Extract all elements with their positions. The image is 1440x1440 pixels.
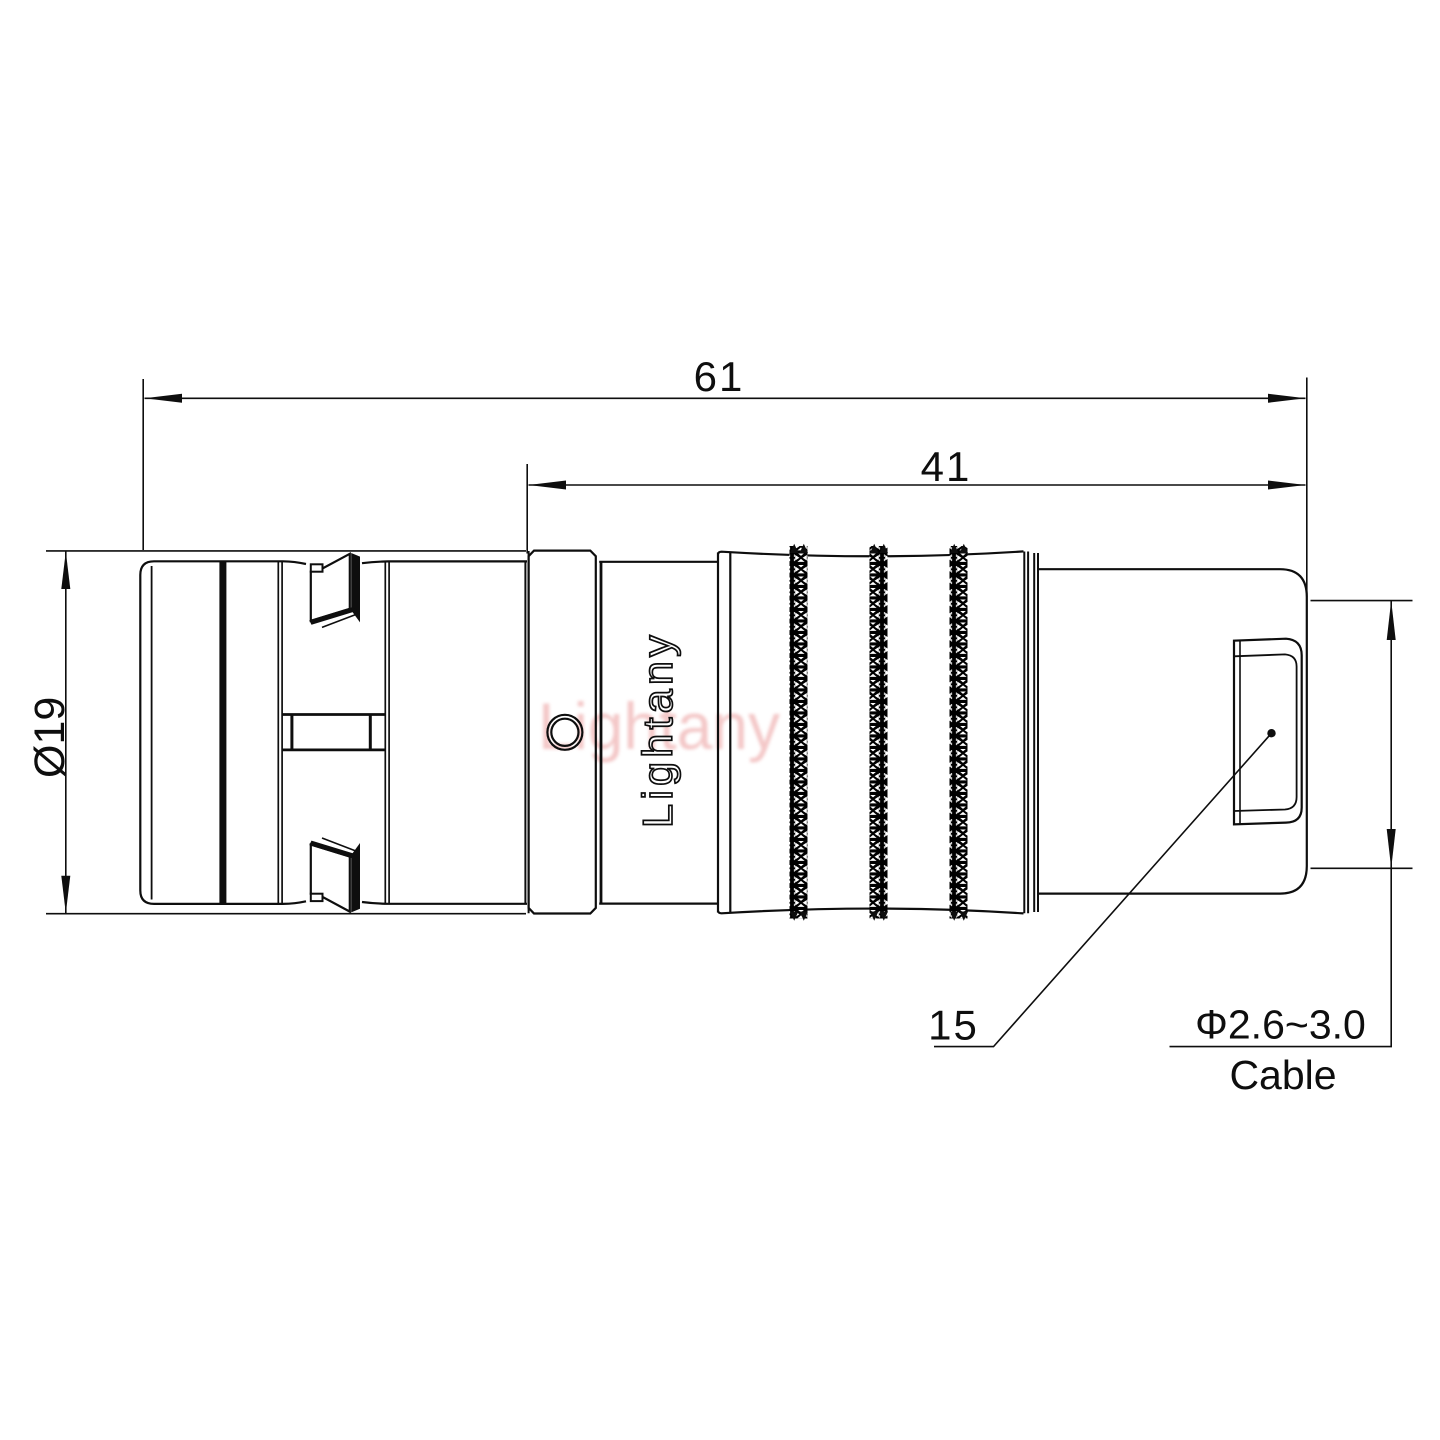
svg-text:Ø19: Ø19 (26, 697, 74, 778)
svg-text:Φ2.6~3.0: Φ2.6~3.0 (1195, 1002, 1366, 1048)
svg-text:15: 15 (928, 1002, 979, 1049)
svg-text:61: 61 (694, 353, 745, 400)
svg-text:Lightany: Lightany (634, 631, 681, 828)
svg-text:Cable: Cable (1229, 1052, 1336, 1098)
svg-text:41: 41 (921, 443, 972, 490)
